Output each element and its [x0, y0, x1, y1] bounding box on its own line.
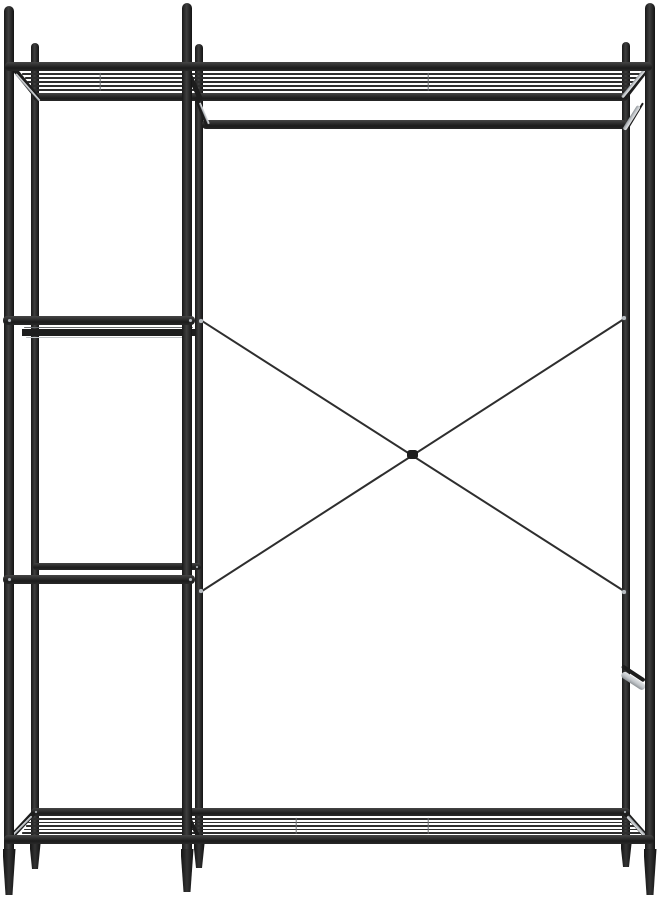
left-shelf-2-front-edge	[26, 337, 190, 338]
brace-bolt-bottom-left	[199, 589, 203, 593]
product-stage	[0, 0, 657, 900]
bottom-shelf-wire-3	[26, 825, 636, 827]
top-shelf-wire-3	[27, 81, 635, 83]
shelf-2-bolt-right	[189, 319, 192, 322]
left-shelf-3-back-rail	[33, 563, 201, 570]
bottom-shelf-wire-2	[28, 822, 633, 824]
front-middle-post	[182, 3, 192, 852]
shelf-2-bolt-left	[8, 319, 11, 322]
back-middle-post	[195, 44, 203, 845]
bottom-shelf-wire-1	[30, 818, 630, 820]
front-right-foot	[644, 849, 657, 895]
back-right-foot	[621, 844, 632, 867]
brace-bolt-top-left	[199, 319, 203, 323]
brace-bolt-bottom-right	[622, 590, 626, 594]
top-shelf-wire-4	[29, 85, 633, 87]
left-shelf-2-front-rail	[3, 316, 195, 325]
hanging-rod	[202, 120, 626, 129]
back-middle-foot	[194, 844, 205, 868]
bottom-shelf-back-rail	[31, 808, 630, 816]
top-shelf-back-rail	[33, 93, 628, 101]
shelf-3-bolt-right	[189, 578, 192, 581]
front-right-post	[645, 3, 655, 852]
back-left-post	[31, 43, 39, 845]
back-left-foot	[30, 844, 41, 869]
left-shelf-3-front-rail	[3, 575, 195, 584]
bottom-shelf-front-rail	[4, 835, 654, 844]
bottom-shelf-wire-5	[22, 832, 641, 834]
top-shelf-wire-2	[25, 77, 637, 79]
bottom-mesh-cross-wire-2	[427, 818, 428, 834]
top-shelf-wire-1	[22, 73, 640, 75]
top-shelf-wire-5	[31, 89, 631, 91]
top-shelf-front-rail	[5, 62, 652, 71]
bottom-mesh-cross-wire-1	[295, 818, 296, 834]
back-right-post	[622, 42, 630, 845]
top-mesh-cross-wire-1	[99, 73, 100, 91]
front-middle-foot	[181, 849, 194, 892]
left-shelf-2-edge-highlight	[24, 327, 193, 328]
left-shelf-2-back-rail	[22, 329, 195, 336]
shelf-3-bolt-left	[8, 578, 11, 581]
bottom-shelf-wire-4	[24, 829, 639, 831]
brace-bolt-top-right	[622, 316, 626, 320]
front-left-foot	[3, 849, 16, 895]
front-left-post	[4, 6, 14, 852]
cross-brace-knot	[407, 450, 418, 459]
top-mesh-cross-wire-2	[427, 73, 428, 91]
